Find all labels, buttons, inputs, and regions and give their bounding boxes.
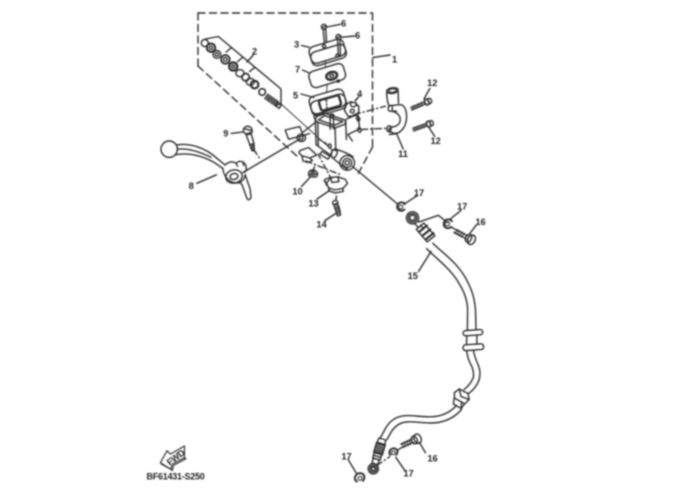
svg-text:10: 10 <box>292 187 302 197</box>
svg-text:2: 2 <box>252 47 257 57</box>
svg-text:17: 17 <box>457 202 467 212</box>
svg-text:13: 13 <box>308 199 318 209</box>
svg-text:BF61431-S250: BF61431-S250 <box>147 472 205 482</box>
svg-text:15: 15 <box>408 271 418 281</box>
svg-text:8: 8 <box>189 181 194 191</box>
svg-text:17: 17 <box>341 452 351 462</box>
svg-text:1: 1 <box>392 55 397 65</box>
svg-text:12: 12 <box>431 136 441 146</box>
svg-text:6: 6 <box>341 19 346 29</box>
svg-text:5: 5 <box>293 91 298 101</box>
svg-text:12: 12 <box>427 78 437 88</box>
svg-text:11: 11 <box>398 149 408 159</box>
svg-text:6: 6 <box>355 31 360 41</box>
svg-text:4: 4 <box>357 89 363 99</box>
svg-text:17: 17 <box>403 469 413 479</box>
svg-text:7: 7 <box>295 65 300 75</box>
svg-text:16: 16 <box>427 453 437 463</box>
svg-text:3: 3 <box>294 40 299 50</box>
svg-text:9: 9 <box>223 128 228 138</box>
svg-text:17: 17 <box>414 188 424 198</box>
svg-text:16: 16 <box>475 217 485 227</box>
svg-text:14: 14 <box>316 220 327 230</box>
